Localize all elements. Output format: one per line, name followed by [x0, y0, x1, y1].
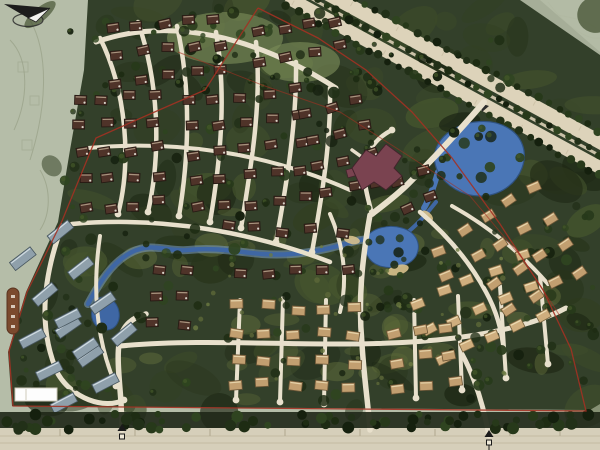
scale-bar-box — [15, 388, 57, 401]
street-tree — [535, 117, 541, 123]
shrub-dot — [396, 302, 401, 307]
tree — [485, 341, 496, 352]
capsule-glyph-mark — [11, 315, 15, 318]
house-roof — [253, 57, 266, 68]
tree-highlight — [487, 132, 492, 137]
tree-highlight — [440, 157, 443, 160]
tree-highlight — [229, 8, 234, 13]
roof-ridge — [246, 202, 256, 203]
street-tree — [546, 122, 552, 128]
tree — [33, 381, 40, 388]
tree — [63, 294, 70, 301]
house — [315, 355, 328, 364]
house — [244, 169, 257, 179]
house — [150, 292, 162, 301]
tree — [328, 87, 340, 99]
tree — [282, 292, 290, 300]
house — [267, 114, 279, 123]
tree — [232, 52, 238, 58]
tree-highlight — [368, 307, 370, 309]
tree-highlight — [281, 359, 284, 362]
bottom-tree — [566, 418, 578, 430]
tree-highlight — [543, 304, 547, 308]
street-tree — [513, 105, 520, 112]
tree-highlight — [350, 71, 352, 73]
street-tree — [393, 41, 400, 48]
tree-highlight — [200, 38, 203, 41]
tree — [57, 344, 66, 353]
tree — [151, 29, 157, 35]
shrub-dot — [193, 325, 198, 330]
house — [342, 383, 355, 392]
street-tree — [527, 134, 534, 141]
tree — [163, 129, 168, 134]
tree — [402, 158, 408, 164]
tree-highlight — [44, 311, 49, 316]
house — [95, 95, 107, 105]
culdesac — [545, 361, 552, 368]
tree — [396, 234, 404, 242]
shrub-dot — [228, 275, 231, 278]
tree — [476, 172, 487, 183]
tree — [384, 304, 392, 312]
tree — [24, 368, 29, 373]
street-tree — [584, 167, 592, 175]
house — [290, 265, 302, 274]
bottom-tree — [133, 418, 145, 430]
tree — [393, 247, 403, 257]
tree — [122, 231, 128, 237]
tree-highlight — [379, 269, 381, 271]
street-tree — [324, 3, 330, 9]
tree — [353, 76, 360, 83]
house — [288, 381, 302, 392]
tree — [80, 380, 90, 390]
tree-highlight — [180, 27, 185, 32]
street-tree — [486, 112, 493, 119]
tree-highlight — [68, 29, 71, 32]
tree — [149, 217, 155, 223]
tree — [588, 329, 600, 341]
house-roof — [190, 175, 203, 185]
tree — [229, 243, 241, 255]
tree — [280, 132, 287, 139]
bottom-tree — [182, 423, 191, 432]
tree — [184, 233, 190, 239]
street-tree — [515, 126, 523, 134]
tree — [302, 324, 311, 333]
shrub-dot — [274, 377, 277, 380]
house — [186, 121, 198, 131]
house-roof — [310, 160, 323, 171]
house-roof — [336, 156, 350, 167]
bottom-tree — [507, 422, 519, 434]
tree — [495, 83, 505, 93]
tree — [110, 156, 119, 165]
street-tree — [424, 78, 431, 85]
house — [127, 202, 139, 211]
house — [253, 57, 266, 68]
gate-house-icon — [487, 440, 492, 445]
culdesac — [145, 209, 152, 216]
house-roof — [100, 172, 113, 182]
tree-highlight — [484, 314, 488, 318]
street-tree — [522, 111, 531, 120]
shrub-dot — [499, 257, 503, 261]
house — [262, 269, 275, 279]
tree — [409, 70, 419, 80]
tree — [296, 50, 305, 59]
house-roof — [80, 202, 93, 213]
bottom-tree — [155, 411, 162, 418]
tree-highlight — [419, 54, 424, 59]
tree — [454, 50, 461, 57]
house — [292, 306, 305, 316]
tree-highlight — [475, 133, 479, 137]
tree — [384, 286, 394, 296]
street-tree — [553, 126, 561, 134]
street-tree — [396, 64, 402, 70]
street-tree — [433, 38, 442, 47]
house — [100, 172, 113, 182]
tree — [131, 62, 140, 71]
house-roof — [289, 82, 302, 93]
tree-highlight — [477, 345, 480, 348]
street-tree — [525, 89, 532, 96]
house-roof — [212, 120, 225, 131]
tree — [271, 368, 281, 378]
street-tree — [484, 90, 493, 99]
bottom-tree — [567, 411, 575, 419]
house — [76, 146, 89, 157]
bottom-tree — [474, 411, 481, 418]
bottom-tree — [297, 410, 307, 420]
tree — [92, 35, 99, 42]
street-tree — [503, 101, 509, 107]
tree-highlight — [434, 73, 438, 77]
shrub-dot — [376, 271, 380, 275]
house-roof — [151, 140, 164, 151]
tree — [316, 121, 322, 127]
house — [74, 95, 86, 104]
street-tree — [331, 29, 339, 37]
tree — [173, 250, 182, 259]
house — [151, 140, 164, 151]
house — [342, 264, 355, 274]
bottom-tree — [454, 420, 462, 428]
house — [336, 156, 350, 167]
tree — [561, 254, 572, 265]
shrub-dot — [334, 312, 338, 316]
house — [274, 196, 286, 205]
roof-ridge — [293, 307, 304, 308]
tree — [250, 52, 256, 58]
shrub-dot — [314, 277, 320, 283]
house — [109, 79, 122, 89]
bottom-tree — [64, 425, 74, 435]
house-roof — [222, 220, 235, 231]
house-roof — [107, 22, 120, 33]
tree-highlight — [365, 146, 368, 149]
capsule-glyph-mark — [11, 305, 15, 308]
bottom-tree — [156, 426, 164, 434]
street-tree — [381, 10, 390, 19]
house — [240, 118, 252, 127]
roof-ridge — [154, 197, 164, 198]
street-tree — [361, 1, 368, 8]
street-tree — [373, 30, 381, 38]
house-roof — [191, 201, 205, 212]
tree — [486, 60, 492, 66]
bottom-tree — [231, 411, 243, 423]
house — [390, 358, 404, 369]
house — [135, 75, 148, 85]
street-tree — [482, 66, 490, 74]
house — [316, 265, 328, 274]
house — [129, 21, 142, 31]
street-tree — [463, 57, 470, 64]
tree — [445, 260, 451, 266]
house — [214, 41, 227, 52]
house-roof — [279, 24, 292, 35]
house — [286, 330, 300, 340]
tree-highlight — [537, 346, 541, 350]
shrub-dot — [343, 253, 347, 257]
tree — [213, 265, 219, 271]
shrub-dot — [500, 275, 506, 281]
bottom-tree — [121, 414, 133, 426]
house — [222, 220, 235, 231]
bottom-tree — [2, 416, 13, 427]
house-roof — [264, 139, 277, 150]
house — [153, 172, 166, 182]
house — [123, 90, 135, 99]
house — [128, 173, 140, 183]
roof-ridge — [258, 330, 269, 331]
street-tree — [493, 71, 500, 78]
tree-highlight — [71, 163, 76, 168]
chimney-dot — [136, 208, 138, 210]
shrub-dot — [356, 356, 360, 360]
culdesac — [176, 213, 183, 220]
house — [336, 228, 349, 238]
house — [298, 108, 311, 119]
tree-highlight — [527, 364, 530, 367]
house — [190, 175, 203, 185]
street-tree — [496, 96, 502, 102]
street-tree — [455, 97, 462, 104]
tree — [313, 85, 324, 96]
house — [255, 377, 268, 387]
tree — [263, 201, 269, 207]
shrub-dot — [198, 317, 203, 322]
tree-highlight — [450, 128, 455, 133]
culdesac — [389, 127, 396, 134]
culdesac — [309, 249, 316, 256]
tree — [381, 220, 388, 227]
tree-highlight — [402, 294, 407, 299]
tree — [488, 37, 493, 42]
tree — [200, 33, 205, 38]
culdesac — [413, 395, 420, 402]
house — [232, 355, 245, 365]
tree — [344, 15, 353, 24]
tree-highlight — [230, 256, 233, 259]
street-tree — [565, 133, 572, 140]
tree — [37, 344, 46, 353]
tree — [425, 179, 434, 188]
tree-highlight — [366, 206, 369, 209]
shrub-dot — [269, 253, 273, 257]
tree-highlight — [371, 270, 374, 273]
street-tree — [574, 138, 581, 145]
house — [441, 350, 455, 361]
roof-ridge — [256, 379, 267, 380]
tree-highlight — [389, 380, 394, 385]
house — [229, 380, 243, 390]
street-tree — [534, 93, 543, 102]
tree — [143, 241, 150, 248]
house — [178, 320, 191, 330]
shrub-dot — [320, 245, 323, 248]
capsule-glyph-mark — [11, 325, 15, 328]
house — [182, 15, 194, 25]
tree-highlight — [389, 53, 391, 55]
house — [348, 302, 361, 311]
tree — [376, 235, 385, 244]
house — [264, 139, 277, 150]
tree — [487, 75, 494, 82]
bottom-tree — [370, 419, 377, 426]
tree — [16, 375, 27, 386]
tree — [494, 35, 504, 45]
tree-highlight — [61, 177, 66, 182]
street-tree — [577, 160, 585, 168]
house — [248, 222, 260, 232]
tree — [255, 95, 263, 103]
tree-highlight — [568, 306, 572, 310]
street-tree — [405, 46, 412, 53]
house — [252, 26, 266, 37]
tree — [397, 272, 404, 279]
house — [124, 147, 137, 158]
shrub-dot — [456, 248, 460, 252]
street-tree — [555, 152, 562, 159]
tree — [66, 365, 75, 374]
house-roof — [390, 358, 404, 369]
street-tree — [365, 48, 373, 56]
tree — [339, 370, 345, 376]
light-canopy-blob — [139, 353, 162, 365]
bottom-tree — [445, 416, 454, 425]
house-roof — [76, 146, 89, 157]
tree — [193, 301, 202, 310]
shrub-dot — [476, 322, 481, 327]
chimney-dot — [171, 76, 173, 78]
tree — [324, 128, 329, 133]
shrub-dot — [325, 292, 331, 298]
bottom-tree — [424, 419, 431, 426]
tree — [390, 261, 398, 269]
tree-highlight — [163, 249, 167, 253]
tree — [235, 211, 245, 221]
shrub-dot — [320, 348, 325, 353]
tree — [108, 282, 118, 292]
house — [419, 349, 433, 359]
house-roof — [302, 18, 315, 29]
culdesac — [238, 225, 245, 232]
house — [110, 50, 123, 60]
culdesac — [233, 397, 240, 404]
shrub-dot — [206, 303, 210, 307]
tree-highlight — [315, 9, 320, 14]
tree — [401, 257, 406, 262]
street-tree — [371, 7, 378, 14]
street-tree — [557, 106, 564, 113]
street-tree — [466, 102, 472, 108]
tree-highlight — [361, 312, 365, 316]
central-pond — [365, 226, 419, 267]
street-tree — [465, 80, 472, 87]
house — [264, 89, 276, 99]
tree — [182, 67, 192, 77]
house — [176, 291, 188, 300]
street-tree — [443, 91, 450, 98]
house — [234, 268, 246, 278]
tree-highlight — [184, 204, 187, 207]
house-roof — [252, 26, 266, 37]
house — [80, 174, 92, 183]
house — [349, 94, 362, 105]
tree — [485, 162, 496, 173]
street-tree — [331, 5, 339, 13]
tree — [417, 220, 423, 226]
house — [293, 166, 306, 176]
street-tree — [361, 23, 370, 32]
culdesac — [121, 397, 128, 404]
tree — [164, 281, 174, 291]
roof-ridge — [265, 91, 275, 92]
bottom-tree — [264, 422, 271, 429]
tree — [119, 71, 125, 77]
tree — [368, 140, 374, 146]
house-roof — [298, 108, 311, 119]
tree — [579, 376, 588, 385]
house — [317, 305, 330, 314]
house — [276, 228, 289, 238]
roof-ridge — [287, 332, 298, 333]
street-tree — [414, 29, 422, 37]
shrub-dot — [501, 371, 505, 375]
tree — [513, 350, 524, 361]
tree — [572, 202, 580, 210]
bottom-tree — [548, 412, 559, 423]
house-roof — [98, 146, 111, 157]
house — [187, 151, 200, 162]
house-roof — [306, 135, 319, 146]
bottom-tree — [407, 423, 416, 432]
tree — [84, 319, 92, 327]
house — [309, 47, 322, 57]
tree — [355, 270, 362, 277]
roof-ridge — [310, 49, 320, 50]
bottom-tree — [30, 409, 42, 421]
house — [390, 384, 404, 395]
roof-ridge — [215, 147, 225, 148]
house — [272, 167, 284, 176]
street-tree — [546, 144, 553, 151]
tree-highlight — [21, 356, 24, 359]
